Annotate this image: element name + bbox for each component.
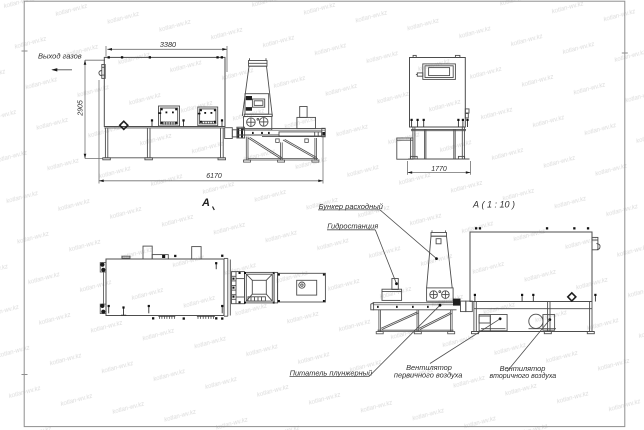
svg-text:6170: 6170 bbox=[206, 173, 222, 180]
svg-text:3380: 3380 bbox=[160, 40, 176, 49]
svg-text:1770: 1770 bbox=[431, 166, 447, 173]
svg-text:Питатель плунжерный: Питатель плунжерный bbox=[290, 368, 373, 377]
svg-text:Бункер расходный: Бункер расходный bbox=[319, 202, 384, 211]
svg-text:Выход газов: Выход газов bbox=[38, 52, 82, 61]
svg-text:первичного воздуха: первичного воздуха bbox=[394, 370, 462, 379]
svg-text:А ( 1 : 10 ): А ( 1 : 10 ) bbox=[472, 199, 515, 209]
svg-text:Вентилятор: Вентилятор bbox=[500, 364, 546, 373]
svg-text:А: А bbox=[201, 197, 210, 209]
svg-text:вторичного воздуха: вторичного воздуха bbox=[490, 372, 557, 380]
svg-text:2905: 2905 bbox=[78, 100, 85, 117]
svg-text:Гидростанция: Гидростанция bbox=[327, 222, 378, 231]
